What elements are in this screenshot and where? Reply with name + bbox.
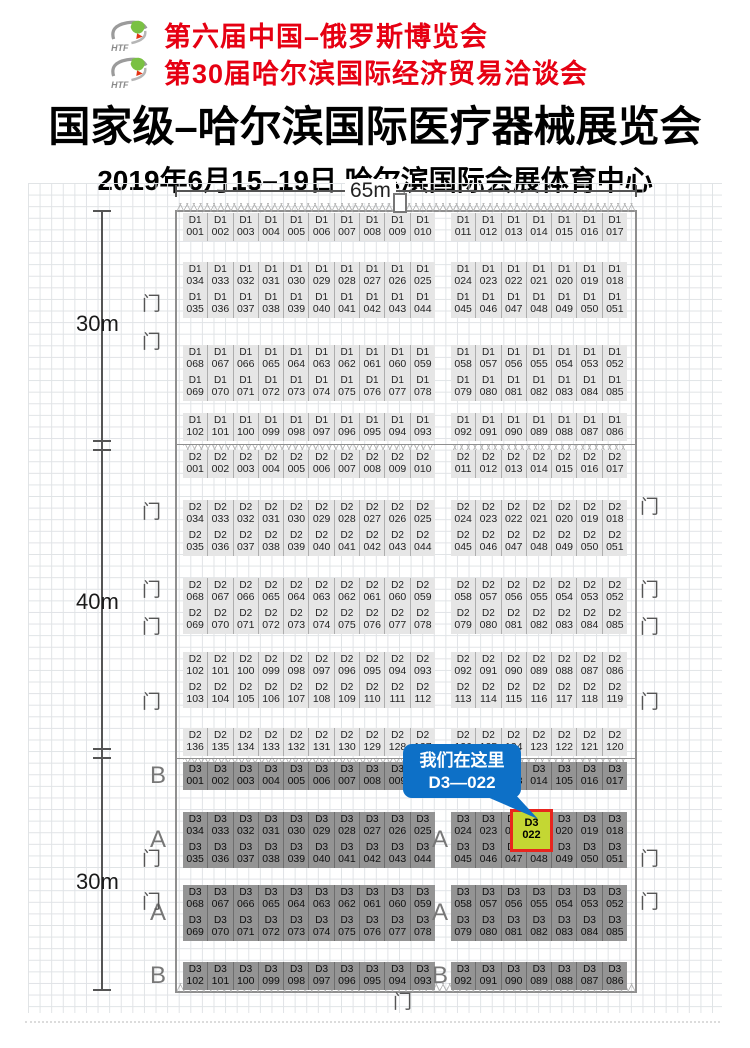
booth-cell: D3039 [283, 840, 308, 868]
dimension-line-top [175, 190, 637, 192]
booth-cell: D3050 [576, 840, 601, 868]
booth-cell: D1078 [410, 373, 435, 401]
booth-cell: D3079 [451, 913, 475, 941]
booth-group-right: D2011D2012D2013D2014D2015D2016D2017 [451, 450, 627, 478]
booth-cell: D1041 [334, 290, 359, 318]
booth-cell: D2053 [576, 578, 601, 606]
booth-group-right: D2092D2091D2090D2089D2088D2087D2086D2113… [451, 652, 627, 708]
booth-cell: D3095 [359, 962, 384, 990]
booth-cell: D3092 [451, 962, 475, 990]
door-icon: 门 [640, 618, 659, 638]
booth-cell: D2006 [308, 450, 333, 478]
booth-group-left: D3001D3002D3003D3004D3005D3006D3007D3008… [183, 762, 435, 790]
booth-cell: D2090 [501, 652, 526, 680]
booth-cell: D2014 [526, 450, 551, 478]
booth-cell: D3073 [283, 913, 308, 941]
booth-cell: D3029 [308, 812, 333, 840]
faint-dotted-line [25, 1021, 720, 1023]
door-icon: 门 [142, 503, 161, 523]
booth-cell: D2096 [334, 652, 359, 680]
booth-cell: D1010 [410, 213, 435, 241]
booth-cell: D2087 [576, 652, 601, 680]
booth-cell: D1090 [501, 413, 526, 441]
door-icon: 门 [142, 850, 161, 870]
booth-cell: D2063 [308, 578, 333, 606]
booth-cell: D3089 [526, 962, 551, 990]
booth-cell: D1039 [283, 290, 308, 318]
booth-cell: D2067 [207, 578, 232, 606]
booth-cell: D1003 [233, 213, 258, 241]
booth-cell: D1050 [576, 290, 601, 318]
booth-cell: D2041 [334, 528, 359, 556]
booth-row: D1045D1046D1047D1048D1049D1050D1051 [451, 290, 627, 318]
booth-group-right: D3058D3057D3056D3055D3054D3053D3052D3079… [451, 885, 627, 941]
htf-logo-text: HTF [111, 80, 129, 89]
booth-cell: D1001 [183, 213, 207, 241]
booth-row: D1102D1101D1100D1099D1098D1097D1096D1095… [183, 413, 435, 441]
booth-cell: D2022 [501, 500, 526, 528]
booth-cell: D2060 [384, 578, 409, 606]
booth-cell: D2122 [551, 728, 576, 756]
booth-row: D2069D2070D2071D2072D2073D2074D2075D2076… [183, 606, 435, 634]
booth-band-d1-2: D1068D1067D1066D1065D1064D1063D1062D1061… [0, 345, 750, 401]
booth-cell: D2085 [602, 606, 627, 634]
booth-cell: D3033 [207, 812, 232, 840]
booth-cell: D1018 [602, 262, 627, 290]
booth-cell: D1056 [501, 345, 526, 373]
booth-cell: D1051 [602, 290, 627, 318]
booth-cell: D1071 [233, 373, 258, 401]
booth-cell: D1070 [207, 373, 232, 401]
door-icon: 门 [640, 581, 659, 601]
booth-cell: D3096 [334, 962, 359, 990]
booth-cell: D3038 [258, 840, 283, 868]
booth-cell: D1060 [384, 345, 409, 373]
door-icon: 门 [142, 295, 161, 315]
booth-cell: D1022 [501, 262, 526, 290]
booth-cell: D2117 [551, 680, 576, 708]
dimension-tick [93, 757, 111, 759]
booth-cell: D2084 [576, 606, 601, 634]
booth-cell: D3075 [334, 913, 359, 941]
event-line-2: HTF 第30届哈尔滨国际经济贸易洽谈会 [104, 53, 750, 90]
booth-row: D1034D1033D1032D1031D1030D1029D1028D1027… [183, 262, 435, 290]
booth-cell: D3062 [334, 885, 359, 913]
booth-cell: D1030 [283, 262, 308, 290]
booth-cell: D3020 [551, 812, 576, 840]
booth-cell: D1027 [359, 262, 384, 290]
booth-cell: D2097 [308, 652, 333, 680]
booth-cell: D3082 [526, 913, 551, 941]
booth-row: D1035D1036D1037D1038D1039D1040D1041D1042… [183, 290, 435, 318]
booth-group-right: D2058D2057D2056D2055D2054D2053D2052D2079… [451, 578, 627, 634]
booth-cell: D2018 [602, 500, 627, 528]
booth-cell: D1036 [207, 290, 232, 318]
booth-row: D1092D1091D1090D1089D1088D1087D1086 [451, 413, 627, 441]
booth-cell: D2094 [384, 652, 409, 680]
booth-cell: D2010 [410, 450, 435, 478]
booth-cell: D2055 [526, 578, 551, 606]
booth-cell: D1091 [475, 413, 500, 441]
booth-cell: D2025 [410, 500, 435, 528]
booth-cell: D2105 [233, 680, 258, 708]
booth-cell: D1099 [258, 413, 283, 441]
booth-cell: D2002 [207, 450, 232, 478]
booth-cell: D3049 [551, 840, 576, 868]
booth-cell: D1098 [283, 413, 308, 441]
booth-row: D3058D3057D3056D3055D3054D3053D3052 [451, 885, 627, 913]
booth-cell: D1025 [410, 262, 435, 290]
booth-cell: D1087 [576, 413, 601, 441]
booth-group-left: D2136D2135D2134D2133D2132D2131D2130D2129… [183, 728, 435, 756]
booth-cell: D3055 [526, 885, 551, 913]
booth-row: D1069D1070D1071D1072D1073D1074D1075D1076… [183, 373, 435, 401]
booth-cell: D1086 [602, 413, 627, 441]
booth-row: D2011D2012D2013D2014D2015D2016D2017 [451, 450, 627, 478]
booth-group-right: D1011D1012D1013D1014D1015D1016D1017 [451, 213, 627, 241]
booth-cell: D1037 [233, 290, 258, 318]
booth-cell: D1046 [475, 290, 500, 318]
dimension-tick [635, 185, 637, 197]
booth-cell: D2107 [283, 680, 308, 708]
booth-cell: D2103 [183, 680, 207, 708]
booth-row: D2024D2023D2022D2021D2020D2019D2018 [451, 500, 627, 528]
booth-cell: D3042 [359, 840, 384, 868]
booth-cell: D2133 [258, 728, 283, 756]
booth-cell: D2031 [258, 500, 283, 528]
booth-cell: D2101 [207, 652, 232, 680]
floor-plan: 65m 30m 40m 30m D1001D1002D1003D1004D100… [0, 183, 750, 1028]
booth-cell: D2023 [475, 500, 500, 528]
event-title-1: 第六届中国–俄罗斯博览会 [164, 15, 488, 54]
booth-cell: D1053 [576, 345, 601, 373]
booth-cell: D3072 [258, 913, 283, 941]
booth-cell: D2080 [475, 606, 500, 634]
door-icon: 门 [142, 693, 161, 713]
booth-row: D3092D3091D3090D3089D3088D3087D3086 [451, 962, 627, 990]
booth-cell: D2017 [602, 450, 627, 478]
booth-row: D2035D2036D2037D2038D2039D2040D2041D2042… [183, 528, 435, 556]
booth-cell: D1089 [526, 413, 551, 441]
htf-logo-text: HTF [111, 43, 129, 52]
booth-cell: D2069 [183, 606, 207, 634]
booth-cell: D2095 [359, 652, 384, 680]
booth-cell: D3081 [501, 913, 526, 941]
booth-cell: D2007 [334, 450, 359, 478]
booth-cell: D2112 [410, 680, 435, 708]
booth-cell: D2012 [475, 450, 500, 478]
booth-cell: D2001 [183, 450, 207, 478]
booth-group-left: D3068D3067D3066D3065D3064D3063D3062D3061… [183, 885, 435, 941]
booth-cell: D2121 [576, 728, 601, 756]
booth-cell: D1102 [183, 413, 207, 441]
booth-group-left: D3102D3101D3100D3099D3098D3097D3096D3095… [183, 962, 435, 990]
booth-cell: D3030 [283, 812, 308, 840]
booth-cell: D2073 [283, 606, 308, 634]
booth-cell: D1020 [551, 262, 576, 290]
booth-cell: D2021 [526, 500, 551, 528]
booth-cell: D1094 [384, 413, 409, 441]
booth-cell: D2135 [207, 728, 232, 756]
booth-cell: D1024 [451, 262, 475, 290]
booth-cell: D3100 [233, 962, 258, 990]
booth-cell: D1082 [526, 373, 551, 401]
booth-cell: D1088 [551, 413, 576, 441]
booth-cell: D2024 [451, 500, 475, 528]
booth-group-left: D3034D3033D3032D3031D3030D3029D3028D3027… [183, 812, 435, 868]
booth-cell: D1072 [258, 373, 283, 401]
booth-cell: D1067 [207, 345, 232, 373]
booth-row: D2058D2057D2056D2055D2054D2053D2052 [451, 578, 627, 606]
booth-row: D1011D1012D1013D1014D1015D1016D1017 [451, 213, 627, 241]
booth-row: D2136D2135D2134D2133D2132D2131D2130D2129… [183, 728, 435, 756]
booth-cell: D3032 [233, 812, 258, 840]
booth-cell: D2116 [526, 680, 551, 708]
booth-cell: D1063 [308, 345, 333, 373]
booth-cell: D1012 [475, 213, 500, 241]
booth-cell: D3052 [602, 885, 627, 913]
booth-cell: D2076 [359, 606, 384, 634]
booth-band-d1-1: D1034D1033D1032D1031D1030D1029D1028D1027… [0, 262, 750, 318]
door-icon: 门 [640, 693, 659, 713]
booth-group-left: D2034D2033D2032D2031D2030D2029D2028D2027… [183, 500, 435, 556]
booth-cell: D3067 [207, 885, 232, 913]
booth-row: D2068D2067D2066D2065D2064D2063D2062D2061… [183, 578, 435, 606]
booth-cell: D1095 [359, 413, 384, 441]
booth-group-left: D2068D2067D2066D2065D2064D2063D2062D2061… [183, 578, 435, 634]
booth-cell: D3070 [207, 913, 232, 941]
booth-cell: D3006 [308, 762, 333, 790]
booth-cell: D1093 [410, 413, 435, 441]
booth-cell: D1038 [258, 290, 283, 318]
booth-cell: D3035 [183, 840, 207, 868]
booth-cell: D3069 [183, 913, 207, 941]
booth-group-right: D3092D3091D3090D3089D3088D3087D3086 [451, 962, 627, 990]
booth-cell: D1035 [183, 290, 207, 318]
booth-row: D2079D2080D2081D2082D2083D2084D2085 [451, 606, 627, 634]
htf-logo-icon: HTF [104, 18, 154, 52]
booth-cell: D3028 [334, 812, 359, 840]
dimension-tick [175, 185, 177, 197]
booth-cell: D3031 [258, 812, 283, 840]
booth-cell: D3097 [308, 962, 333, 990]
booth-cell: D1016 [576, 213, 601, 241]
booth-cell: D3018 [602, 812, 627, 840]
booth-cell: D2054 [551, 578, 576, 606]
booth-cell: D1009 [384, 213, 409, 241]
booth-cell: D3026 [384, 812, 409, 840]
booth-row: D1058D1057D1056D1055D1054D1053D1052 [451, 345, 627, 373]
booth-cell: D1021 [526, 262, 551, 290]
booth-cell: D1080 [475, 373, 500, 401]
booth-cell: D1011 [451, 213, 475, 241]
booth-cell: D3060 [384, 885, 409, 913]
booth-row: D2034D2033D2032D2031D2030D2029D2028D2027… [183, 500, 435, 528]
booth-cell: D1062 [334, 345, 359, 373]
booth-cell: D2086 [602, 652, 627, 680]
booth-cell: D2110 [359, 680, 384, 708]
booth-cell: D3074 [308, 913, 333, 941]
door-icon: 门 [142, 581, 161, 601]
booth-cell: D1014 [526, 213, 551, 241]
booth-cell: D2123 [526, 728, 551, 756]
booth-row: D2113D2114D2115D2116D2117D2118D2119 [451, 680, 627, 708]
booth-cell: D3053 [576, 885, 601, 913]
booth-group-left: D1034D1033D1032D1031D1030D1029D1028D1027… [183, 262, 435, 318]
booth-cell: D2077 [384, 606, 409, 634]
booth-cell: D2044 [410, 528, 435, 556]
booth-cell: D2043 [384, 528, 409, 556]
booth-cell: D1042 [359, 290, 384, 318]
booth-cell: D1034 [183, 262, 207, 290]
booth-cell: D2026 [384, 500, 409, 528]
booth-cell: D2036 [207, 528, 232, 556]
booth-cell: D2049 [551, 528, 576, 556]
booth-row: D3079D3080D3081D3082D3083D3084D3085 [451, 913, 627, 941]
booth-cell: D2078 [410, 606, 435, 634]
booth-cell: D1023 [475, 262, 500, 290]
booth-cell: D2108 [308, 680, 333, 708]
dimension-top-label: 65m [345, 179, 396, 203]
booth-band-d1-3: D1102D1101D1100D1099D1098D1097D1096D1095… [0, 413, 750, 441]
booth-cell: D1032 [233, 262, 258, 290]
booth-cell: D1069 [183, 373, 207, 401]
door-icon: 门 [640, 498, 659, 518]
booth-cell: D2056 [501, 578, 526, 606]
booth-cell: D1092 [451, 413, 475, 441]
booth-band-d3-9: BD3001D3002D3003D3004D3005D3006D3007D300… [0, 762, 750, 790]
booth-cell: D2004 [258, 450, 283, 478]
zone-label: A [432, 899, 448, 927]
booth-cell: D3091 [475, 962, 500, 990]
booth-cell: D1081 [501, 373, 526, 401]
booth-cell: D2037 [233, 528, 258, 556]
booth-cell: D2113 [451, 680, 475, 708]
booth-cell: D2099 [258, 652, 283, 680]
booth-cell: D2052 [602, 578, 627, 606]
booth-cell: D1028 [334, 262, 359, 290]
booth-cell: D2072 [258, 606, 283, 634]
booth-band-d2-4: D2001D2002D2003D2004D2005D2006D2007D2008… [0, 450, 750, 478]
booth-cell: D2079 [451, 606, 475, 634]
door-icon [393, 193, 407, 213]
booth-cell: D3001 [183, 762, 207, 790]
booth-cell: D1043 [384, 290, 409, 318]
booth-cell: D3101 [207, 962, 232, 990]
booth-cell: D1047 [501, 290, 526, 318]
booth-cell: D2100 [233, 652, 258, 680]
booth-cell: D1040 [308, 290, 333, 318]
booth-cell: D1033 [207, 262, 232, 290]
booth-cell: D2075 [334, 606, 359, 634]
zone-label: A [432, 826, 448, 854]
booth-cell: D2034 [183, 500, 207, 528]
booth-band-d3-12: BBD3102D3101D3100D3099D3098D3097D3096D30… [0, 962, 750, 990]
booth-row: D1001D1002D1003D1004D1005D1006D1007D1008… [183, 213, 435, 241]
booth-cell: D1097 [308, 413, 333, 441]
booth-band-d1-0: D1001D1002D1003D1004D1005D1006D1007D1008… [0, 213, 750, 241]
booth-cell: D3064 [283, 885, 308, 913]
booth-cell: D2057 [475, 578, 500, 606]
booth-row: D3034D3033D3032D3031D3030D3029D3028D3027… [183, 812, 435, 840]
booth-cell: D2058 [451, 578, 475, 606]
booth-cell: D3004 [258, 762, 283, 790]
booth-cell: D1006 [308, 213, 333, 241]
booth-cell: D1101 [207, 413, 232, 441]
booth-cell: D2104 [207, 680, 232, 708]
booth-cell: D2047 [501, 528, 526, 556]
door-icon: 门 [640, 893, 659, 913]
booth-cell: D3027 [359, 812, 384, 840]
booth-cell: D2027 [359, 500, 384, 528]
booth-cell: D2114 [475, 680, 500, 708]
booth-cell: D3005 [283, 762, 308, 790]
door-icon: 门 [142, 618, 161, 638]
booth-cell: D1005 [283, 213, 308, 241]
booth-group-left: D1001D1002D1003D1004D1005D1006D1007D1008… [183, 213, 435, 241]
booth-band-d3-10: AAD3034D3033D3032D3031D3030D3029D3028D30… [0, 812, 750, 868]
booth-cell: D3084 [576, 913, 601, 941]
booth-row: D2102D2101D2100D2099D2098D2097D2096D2095… [183, 652, 435, 680]
booth-cell: D3054 [551, 885, 576, 913]
booth-cell: D3037 [233, 840, 258, 868]
booth-cell: D2028 [334, 500, 359, 528]
booth-cell: D2033 [207, 500, 232, 528]
booth-cell: D2040 [308, 528, 333, 556]
zone-label: B [432, 962, 448, 990]
booth-cell: D1074 [308, 373, 333, 401]
booth-cell: D1085 [602, 373, 627, 401]
booth-cell: D2065 [258, 578, 283, 606]
booth-cell: D3056 [501, 885, 526, 913]
booth-row: D1024D1023D1022D1021D1020D1019D1018 [451, 262, 627, 290]
booth-cell: D3076 [359, 913, 384, 941]
booth-cell: D2091 [475, 652, 500, 680]
booth-cell: D3083 [551, 913, 576, 941]
booth-row: D3069D3070D3071D3072D3073D3074D3075D3076… [183, 913, 435, 941]
booth-cell: D3065 [258, 885, 283, 913]
booth-cell: D1015 [551, 213, 576, 241]
booth-cell: D1077 [384, 373, 409, 401]
booth-cell: D1057 [475, 345, 500, 373]
zone-label: B [150, 962, 166, 990]
booth-cell: D2071 [233, 606, 258, 634]
booth-cell: D2003 [233, 450, 258, 478]
booth-cell: D2119 [602, 680, 627, 708]
booth-cell: D3105 [551, 762, 576, 790]
booth-cell: D1100 [233, 413, 258, 441]
booth-cell: D2020 [551, 500, 576, 528]
door-icon: 门 [640, 850, 659, 870]
booth-cell: D2045 [451, 528, 475, 556]
booth-band-d2-5: D2034D2033D2032D2031D2030D2029D2028D2027… [0, 500, 750, 556]
booth-cell: D3086 [602, 962, 627, 990]
booth-cell: D2102 [183, 652, 207, 680]
booth-cell: D3087 [576, 962, 601, 990]
booth-cell: D2046 [475, 528, 500, 556]
booth-cell: D1007 [334, 213, 359, 241]
booth-band-d2-7: D2102D2101D2100D2099D2098D2097D2096D2095… [0, 652, 750, 708]
booth-row: D1079D1080D1081D1082D1083D1084D1085 [451, 373, 627, 401]
booth-cell: D1008 [359, 213, 384, 241]
booth-cell: D2015 [551, 450, 576, 478]
page-title: 国家级–哈尔滨国际医疗器械展览会 [0, 93, 750, 154]
booth-cell: D2082 [526, 606, 551, 634]
booth-cell: D3077 [384, 913, 409, 941]
booth-cell: D1079 [451, 373, 475, 401]
booth-cell: D2120 [602, 728, 627, 756]
booth-cell: D2008 [359, 450, 384, 478]
